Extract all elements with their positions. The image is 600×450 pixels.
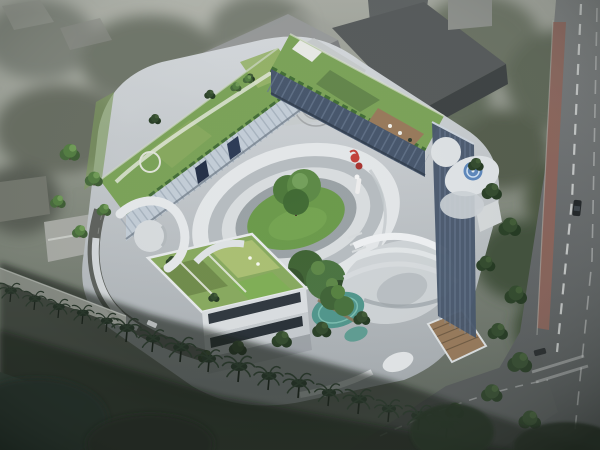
rendering-canvas xyxy=(0,0,600,450)
aerial-rendering xyxy=(0,0,600,450)
vignette-overlay xyxy=(0,0,600,450)
